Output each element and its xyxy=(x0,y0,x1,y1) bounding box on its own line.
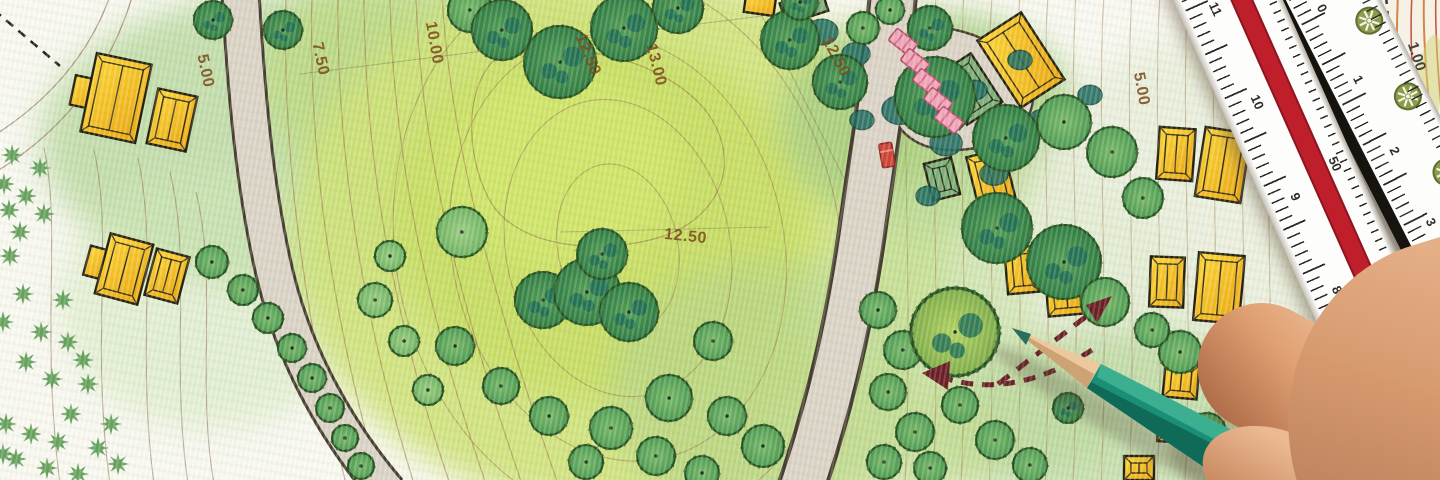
landscape-plan-photograph: 5.007.5010.0012.5013.0012.5012.505.00 1.… xyxy=(0,0,1440,480)
pencil-lead-tip xyxy=(1012,328,1031,345)
